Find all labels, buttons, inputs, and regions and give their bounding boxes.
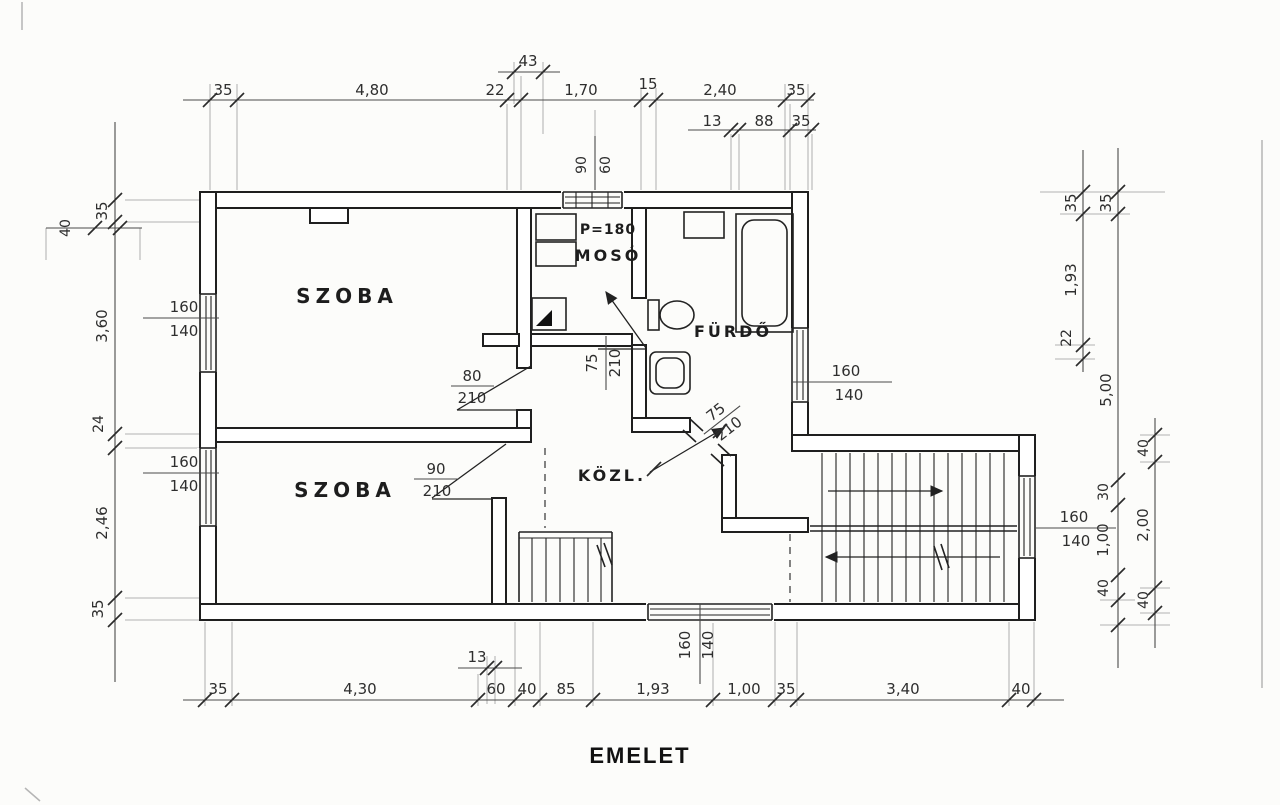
dim-label: 2,46: [93, 506, 111, 539]
bathtub-outer: [736, 214, 793, 332]
dim-label: 13: [467, 648, 486, 666]
dim-label: 35: [208, 680, 227, 698]
chimney-notch: [310, 208, 348, 223]
moso-cabinet-1: [536, 214, 576, 240]
dim-label: 1,93: [636, 680, 669, 698]
dim-label: 1,93: [1062, 263, 1080, 296]
window-size: 140: [170, 322, 199, 340]
dim-labels-left: 40 35 3,60 24 2,46 35: [58, 201, 111, 618]
dim-label: 85: [556, 680, 575, 698]
sink-inner: [656, 358, 684, 388]
window-left-bottom: [197, 448, 219, 526]
window-size: 160: [1060, 508, 1089, 526]
dim-label: 40: [1096, 579, 1112, 597]
dim-label: 88: [754, 112, 773, 130]
dim-label: 40: [517, 680, 536, 698]
dim-label: 35: [1097, 193, 1115, 212]
dim-label: 1,00: [1094, 523, 1112, 556]
dim-label: 35: [1062, 193, 1080, 212]
dim-label: 35: [89, 599, 107, 618]
dim-label: 5,00: [1097, 373, 1115, 406]
wc-bowl: [660, 301, 694, 329]
room-labels: SZOBA SZOBA P=180 MOSÓ FÜRDŐ KÖZL.: [294, 222, 772, 502]
dim-label: 30: [1096, 483, 1112, 501]
dim-label: 40: [1136, 591, 1152, 609]
fixtures: [532, 212, 793, 394]
staircase-small: [519, 532, 612, 602]
moso-cabinet-2: [536, 242, 576, 266]
dim-label: 13: [702, 112, 721, 130]
window-size: 160: [170, 453, 199, 471]
window-size: 160: [676, 631, 694, 660]
staircase-main: [810, 453, 1017, 602]
dim-label: 22: [485, 81, 504, 99]
wc-tank: [648, 300, 659, 330]
window-moso-top: [561, 189, 624, 211]
window-size: 160: [832, 362, 861, 380]
window-stair-east: [1016, 476, 1038, 558]
dim-label: 35: [776, 680, 795, 698]
floor-plan-drawing: 35 4,80 22 1,70 15 2,40 35 43 13 88 35 9…: [0, 0, 1280, 805]
dim-label: 1,70: [564, 81, 597, 99]
dim-label: 43: [518, 52, 537, 70]
room-label-szoba-bottom: SZOBA: [294, 478, 396, 502]
window-bottom: [646, 601, 774, 623]
page-title: EMELET: [589, 743, 690, 768]
dim-label: 90: [574, 156, 590, 174]
dim-label: 4,30: [343, 680, 376, 698]
door-size: 80: [462, 367, 481, 385]
room-label-moso: MOSÓ: [575, 246, 642, 265]
dim-label: 40: [1136, 439, 1152, 457]
dim-label: 24: [91, 415, 107, 433]
dim-label: 2,40: [703, 81, 736, 99]
dim-label: 3,60: [93, 309, 111, 342]
room-label-furdo: FÜRDŐ: [694, 321, 772, 341]
door-size: 210: [423, 482, 452, 500]
door-size: 210: [606, 349, 624, 378]
dim-label: 4,80: [355, 81, 388, 99]
window-size: 140: [1062, 532, 1091, 550]
dim-label: 35: [791, 112, 810, 130]
door-size: 210: [458, 389, 487, 407]
dim-label: 35: [786, 81, 805, 99]
window-size: 140: [170, 477, 199, 495]
door-size: 90: [426, 460, 445, 478]
dim-label: 2,00: [1134, 508, 1152, 541]
label-p180: P=180: [580, 222, 636, 238]
dim-label: 1,00: [727, 680, 760, 698]
dim-labels-bottom: 35 4,30 60 40 85 1,93 1,00 35 3,40 40 13: [208, 648, 1030, 698]
bathtub-inner: [742, 220, 787, 326]
door-size: 75: [583, 353, 601, 372]
moso-boiler-mark: [536, 310, 552, 326]
dim-label: 60: [598, 156, 614, 174]
scanned-floor-plan-page: 35 4,80 22 1,70 15 2,40 35 43 13 88 35 9…: [0, 0, 1280, 805]
window-size: 140: [835, 386, 864, 404]
room-label-kozl: KÖZL.: [578, 466, 646, 485]
dim-label: 40: [58, 219, 74, 237]
window-size: 160: [170, 298, 199, 316]
furdo-cabinet: [684, 212, 724, 238]
dim-label: 35: [213, 81, 232, 99]
dim-labels-top: 35 4,80 22 1,70 15 2,40 35 43 13 88 35 9…: [213, 52, 810, 174]
dim-label: 15: [638, 75, 657, 93]
room-label-szoba-top: SZOBA: [296, 284, 398, 308]
dim-label: 35: [93, 201, 111, 220]
dim-label: 3,40: [886, 680, 919, 698]
dim-label: 60: [486, 680, 505, 698]
window-size: 140: [699, 631, 717, 660]
window-furdo-east: [789, 328, 811, 402]
window-left-top: [197, 294, 219, 372]
dim-label: 40: [1011, 680, 1030, 698]
dim-label: 22: [1059, 329, 1075, 347]
